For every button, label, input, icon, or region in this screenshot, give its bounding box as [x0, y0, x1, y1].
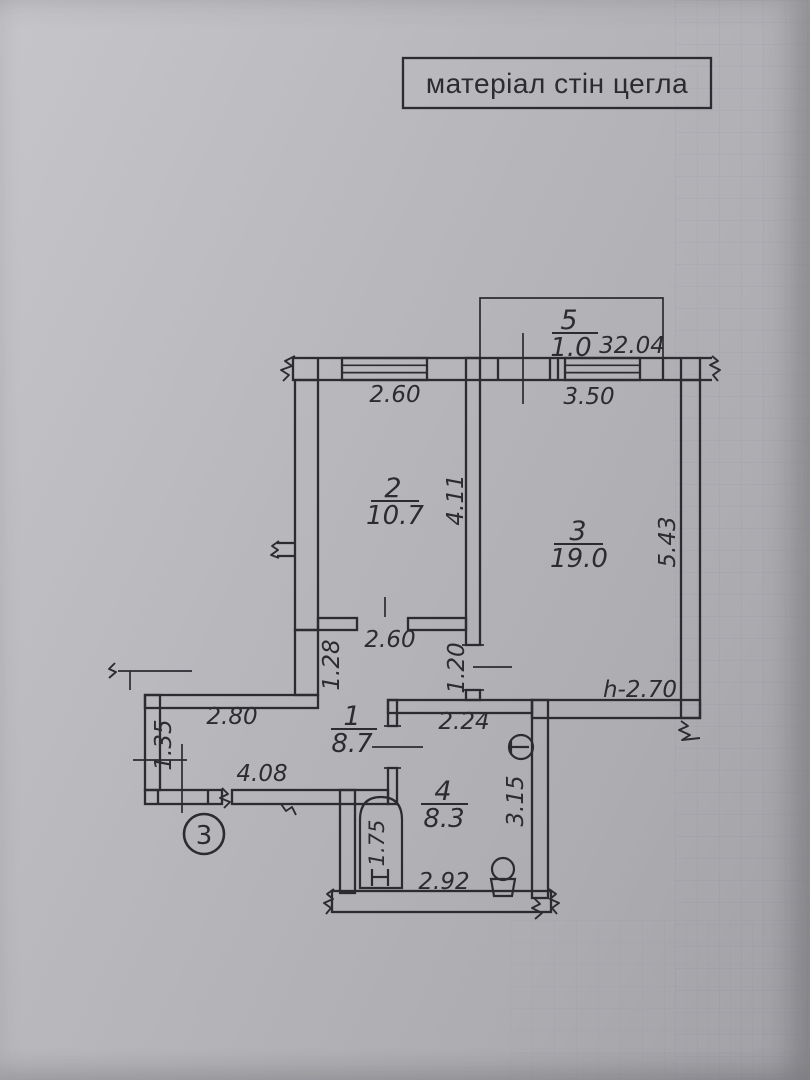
- dim-room1-left-depth: 1.28: [319, 639, 345, 690]
- dim-room3-door: 1.20: [444, 642, 470, 693]
- wall-segment: [340, 790, 355, 893]
- wall-segment: [295, 630, 318, 695]
- room-area: 10.7: [366, 501, 424, 531]
- room-number: 2: [384, 473, 401, 504]
- wall-segment: [145, 790, 222, 804]
- room-number: 5: [560, 305, 577, 336]
- room-label-3: 3 19.0: [550, 516, 608, 574]
- marker-number: 3: [196, 821, 213, 851]
- room-number: 3: [569, 516, 586, 547]
- wall-segment: [318, 618, 357, 630]
- dim-room1-width-top: 2.80: [206, 704, 257, 730]
- entrance-marker: 3: [184, 814, 224, 854]
- break-mark: [532, 898, 542, 919]
- break-mark: [281, 804, 296, 815]
- wall-segment: [295, 380, 318, 630]
- room-area: 8.7: [331, 729, 373, 759]
- dimension-leaders: [133, 333, 523, 813]
- bathtub-faucet-icon: [372, 869, 388, 886]
- dim-room4-width-top: 2.24: [438, 709, 489, 735]
- room-label-4: 4 8.3: [421, 776, 468, 834]
- dim-room3-depth: 5.43: [655, 516, 681, 567]
- dim-room2-depth: 4.11: [443, 474, 469, 525]
- dim-room1-left-height: 1.35: [151, 719, 177, 770]
- room-number: 4: [434, 776, 451, 807]
- room-area: 1.0: [550, 333, 591, 363]
- room-label-5: 5 1.0: [550, 305, 598, 363]
- break-mark: [710, 356, 720, 381]
- dim-total-area: 32.04: [599, 333, 665, 359]
- dim-room4-width-bottom: 2.92: [418, 869, 469, 895]
- dim-room2-width: 2.60: [369, 382, 420, 408]
- floor-plan-drawing: матеріал стін цегла: [0, 0, 810, 1080]
- scanned-floor-plan-sheet: матеріал стін цегла: [0, 0, 810, 1080]
- dim-room4-depth: 3.15: [503, 775, 529, 826]
- break-mark: [109, 663, 116, 678]
- window-room2: [342, 358, 427, 380]
- room-number: 1: [343, 701, 360, 732]
- room-label-2: 2 10.7: [366, 473, 424, 531]
- wall-segment: [408, 618, 466, 630]
- wall-segment: [532, 700, 548, 898]
- wall-segment: [681, 380, 700, 718]
- dim-bathtub-length: 1.75: [365, 820, 389, 867]
- room-label-1: 1 8.7: [331, 701, 377, 759]
- washbasin-icon: [509, 735, 533, 759]
- break-mark: [679, 721, 700, 740]
- wall-material-note: матеріал стін цегла: [426, 68, 688, 99]
- room-area: 8.3: [423, 804, 464, 834]
- dim-room1-opening: 2.60: [364, 627, 415, 653]
- title-box: матеріал стін цегла: [403, 58, 711, 108]
- ceiling-height-note: h-2.70: [603, 677, 677, 703]
- dim-room1-width-bottom: 4.08: [236, 761, 287, 787]
- room-area: 19.0: [550, 544, 608, 574]
- dim-room3-width: 3.50: [563, 384, 614, 410]
